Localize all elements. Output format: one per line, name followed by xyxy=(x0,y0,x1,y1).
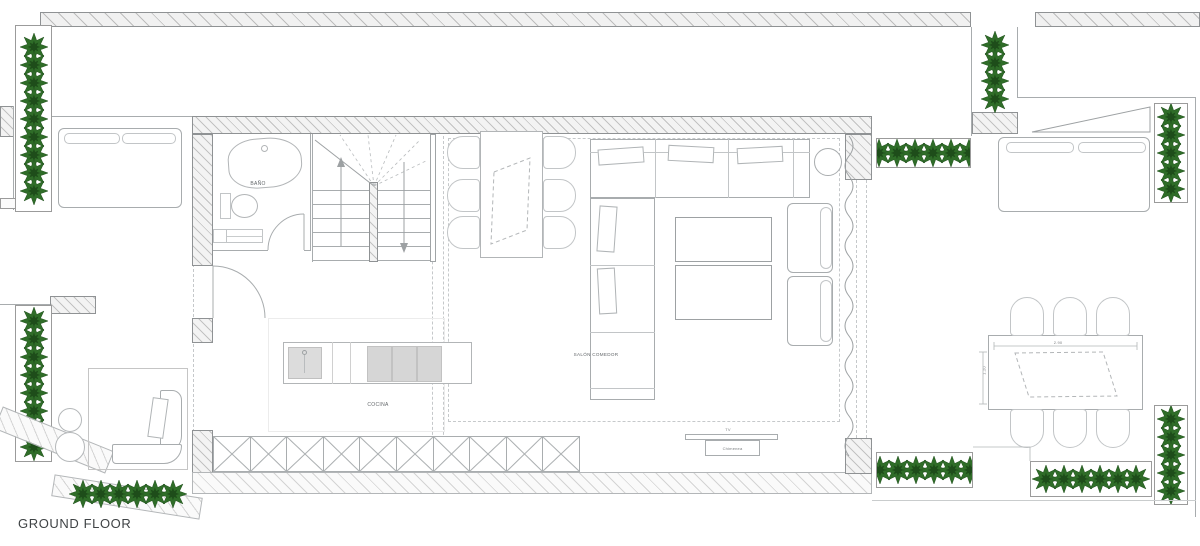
sofa-divider-3 xyxy=(590,265,655,266)
terrace-step-line xyxy=(973,447,1030,461)
storage-unit-box xyxy=(286,436,324,472)
bathroom-wall-right xyxy=(310,134,311,250)
sofa-divider-1 xyxy=(655,139,656,198)
glass-line-right-2 xyxy=(866,135,867,438)
planter-corridor xyxy=(976,30,1014,114)
bathroom-vanity-cabinet xyxy=(213,229,227,243)
bathroom-wall-bottom-a xyxy=(213,250,268,251)
pouf-small xyxy=(58,408,82,432)
left-wall-line xyxy=(13,106,14,210)
apartment-wall-right-lower xyxy=(845,438,872,474)
floor-plan-canvas: BAÑO COCINA SALÓN COMEDOR TV Chimenea xyxy=(0,0,1200,546)
armchair-1-back xyxy=(820,207,832,269)
dining-chair-right-2 xyxy=(543,179,576,212)
left-wall-stub-top xyxy=(0,106,14,137)
bush-row-bottom-left xyxy=(56,477,200,511)
daybed-tr-cushion-1 xyxy=(1006,142,1074,153)
boundary-wall-top-right xyxy=(1035,12,1200,27)
apartment-wall-right-upper xyxy=(845,134,872,180)
daybed-tl-cushion-2 xyxy=(122,133,176,144)
planter-right-top xyxy=(1154,103,1188,203)
sofa-cushion-3 xyxy=(737,146,784,164)
terrace-chair-top-3 xyxy=(1096,297,1130,336)
terrace-chair-top-1 xyxy=(1010,297,1044,336)
stair-winder-dash-2 xyxy=(368,135,374,186)
plant-bush xyxy=(19,176,49,206)
dining-chair-left-3 xyxy=(447,216,480,249)
storage-unit-box xyxy=(250,436,288,472)
corridor-wall-base xyxy=(972,112,1018,134)
sofa-arm-line xyxy=(793,139,794,198)
apartment-wall-left-pier xyxy=(192,318,213,343)
plant-bush xyxy=(1156,174,1186,203)
tv-label: TV xyxy=(718,427,738,432)
kitchen-sink-line xyxy=(304,355,305,373)
storage-unit-box xyxy=(323,436,361,472)
dining-chair-right-3 xyxy=(543,216,576,249)
hedge-right-bottom xyxy=(876,452,973,488)
storage-unit-box xyxy=(396,436,434,472)
dining-table xyxy=(480,131,543,258)
entry-door-arc xyxy=(213,266,265,318)
planter-top-left xyxy=(15,25,52,212)
sofa-cushion-1 xyxy=(597,146,644,165)
stairs-center-post xyxy=(369,182,378,262)
pouf-large xyxy=(55,432,85,462)
sofa-divider-2 xyxy=(728,139,729,198)
side-table-round xyxy=(814,148,842,176)
stair-winder-dash-3 xyxy=(374,135,396,186)
sofa-divider-4 xyxy=(590,332,655,333)
left-wall-stub-lower xyxy=(50,296,96,314)
toilet-bowl xyxy=(231,194,258,218)
storage-unit-box xyxy=(213,436,251,472)
stair-winder-dash-4 xyxy=(374,140,420,186)
terrace-table-width-dim: 2.90 xyxy=(1046,340,1070,345)
dining-chair-left-2 xyxy=(447,179,480,212)
sofa-cushion-4 xyxy=(596,205,617,252)
storage-unit-box xyxy=(433,436,471,472)
bathroom-door-arc xyxy=(268,214,304,250)
bathroom-wall-bottom-b xyxy=(304,250,311,251)
kitchen-label: COCINA xyxy=(350,402,406,408)
planter-bottom-right xyxy=(1030,461,1152,497)
stair-winder-dash-5 xyxy=(374,160,428,186)
page-title: GROUND FLOOR xyxy=(18,516,131,531)
dining-chair-right-1 xyxy=(543,136,576,169)
curtain-line xyxy=(845,136,853,456)
storage-unit-box xyxy=(469,436,507,472)
stair-arrow-up-head xyxy=(337,157,345,167)
stairs-wall-right xyxy=(430,134,436,262)
terrace-table xyxy=(988,335,1143,410)
plant-bush xyxy=(955,455,974,485)
kitchen-appliance-2 xyxy=(392,346,417,382)
apartment-wall-left-lower xyxy=(192,430,213,474)
bathroom-label: BAÑO xyxy=(238,181,278,187)
daybed-tl-cushion-1 xyxy=(64,133,120,144)
storage-unit-box xyxy=(506,436,544,472)
storage-unit-box xyxy=(359,436,397,472)
bathroom-faucet xyxy=(261,145,268,152)
chaise-horizontal xyxy=(112,444,182,464)
stair-winder-line xyxy=(315,140,374,186)
neighbor-terrace-line xyxy=(1018,97,1196,98)
terrace-chair-bottom-2 xyxy=(1053,409,1087,448)
kitchen-island-divider-2 xyxy=(350,342,351,384)
daybed-tr-cushion-2 xyxy=(1078,142,1146,153)
stair-winder-dash-1 xyxy=(340,135,374,186)
plant-bush xyxy=(1121,464,1151,494)
coffee-table-1 xyxy=(675,217,772,262)
planter-right-lower xyxy=(1154,405,1188,505)
apartment-wall-left-upper xyxy=(192,134,213,266)
kitchen-appliance-3 xyxy=(417,346,442,382)
coffee-table-2 xyxy=(675,265,772,320)
plant-bush xyxy=(980,84,1010,114)
boundary-wall-right-edge xyxy=(1195,97,1196,517)
fireplace-label: Chimenea xyxy=(723,446,743,451)
terrace-edge-bottom-right xyxy=(872,500,1196,501)
fireplace-box: Chimenea xyxy=(705,440,760,456)
terrace-edge-top-left xyxy=(50,116,192,117)
hedge-right-top xyxy=(876,138,971,168)
plant-bush xyxy=(954,138,972,168)
terrace-table-depth-dim: 1.20 xyxy=(982,359,987,383)
kitchen-island-divider-1 xyxy=(332,342,333,384)
living-dining-label: SALÓN COMEDOR xyxy=(556,352,636,357)
armchair-2-back xyxy=(820,280,832,342)
awning-triangle xyxy=(1032,107,1150,132)
terrace-chair-top-2 xyxy=(1053,297,1087,336)
sofa-cushion-5 xyxy=(597,268,617,315)
boundary-wall-top-left xyxy=(40,12,971,27)
plant-bush xyxy=(158,479,188,509)
sofa-arm-line-2 xyxy=(590,388,655,389)
toilet-tank xyxy=(220,193,231,219)
terrace-chair-bottom-1 xyxy=(1010,409,1044,448)
dining-chair-left-1 xyxy=(447,136,480,169)
storage-unit-row xyxy=(213,436,580,472)
glass-line-left xyxy=(193,264,194,432)
corridor-wall-right xyxy=(1017,27,1018,98)
glass-line-right-1 xyxy=(856,135,857,438)
kitchen-appliance-1 xyxy=(367,346,392,382)
apartment-wall-bottom xyxy=(192,472,872,494)
storage-unit-box xyxy=(542,436,580,472)
sofa-cushion-2 xyxy=(668,145,715,163)
terrace-chair-bottom-3 xyxy=(1096,409,1130,448)
